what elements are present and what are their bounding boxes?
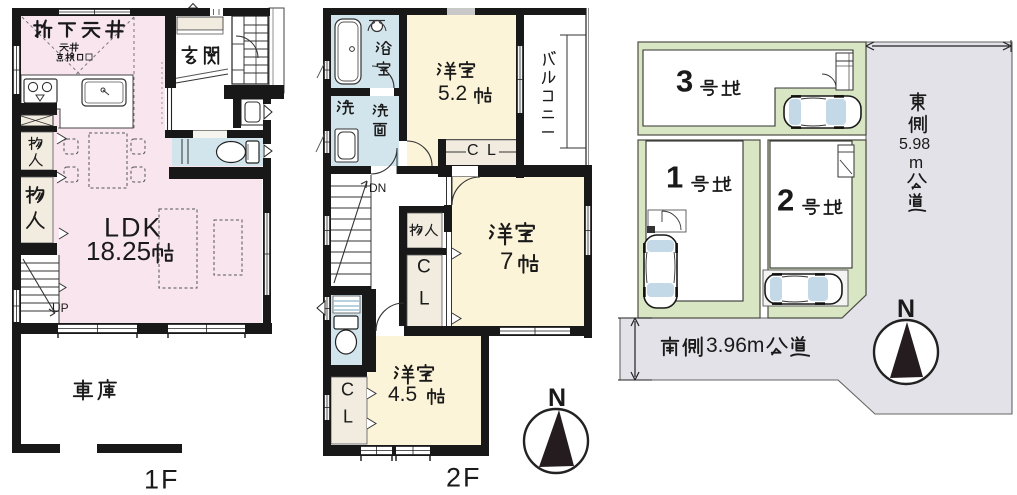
svg-text:5.98: 5.98 bbox=[899, 136, 930, 153]
svg-text:7: 7 bbox=[500, 248, 513, 275]
svg-text:C: C bbox=[417, 256, 431, 277]
svg-text:4.5: 4.5 bbox=[388, 383, 417, 406]
svg-text:L: L bbox=[343, 407, 353, 427]
svg-text:1: 1 bbox=[666, 160, 683, 195]
svg-text:UP: UP bbox=[52, 301, 69, 315]
svg-text:1F: 1F bbox=[144, 465, 180, 495]
svg-text:C: C bbox=[467, 142, 479, 159]
svg-text:N: N bbox=[548, 384, 566, 412]
svg-text:L: L bbox=[419, 288, 430, 309]
svg-text:18.25: 18.25 bbox=[86, 236, 151, 266]
svg-text:L: L bbox=[487, 142, 496, 159]
svg-text:5.2: 5.2 bbox=[438, 82, 467, 105]
svg-text:N: N bbox=[897, 295, 915, 323]
svg-text:m: m bbox=[909, 153, 923, 172]
svg-text:DN: DN bbox=[369, 181, 386, 195]
svg-text:3: 3 bbox=[676, 64, 693, 99]
svg-text:C: C bbox=[341, 380, 354, 400]
svg-text:2: 2 bbox=[777, 183, 794, 218]
svg-text:2F: 2F bbox=[446, 463, 482, 493]
svg-text:3.96m: 3.96m bbox=[706, 334, 764, 357]
